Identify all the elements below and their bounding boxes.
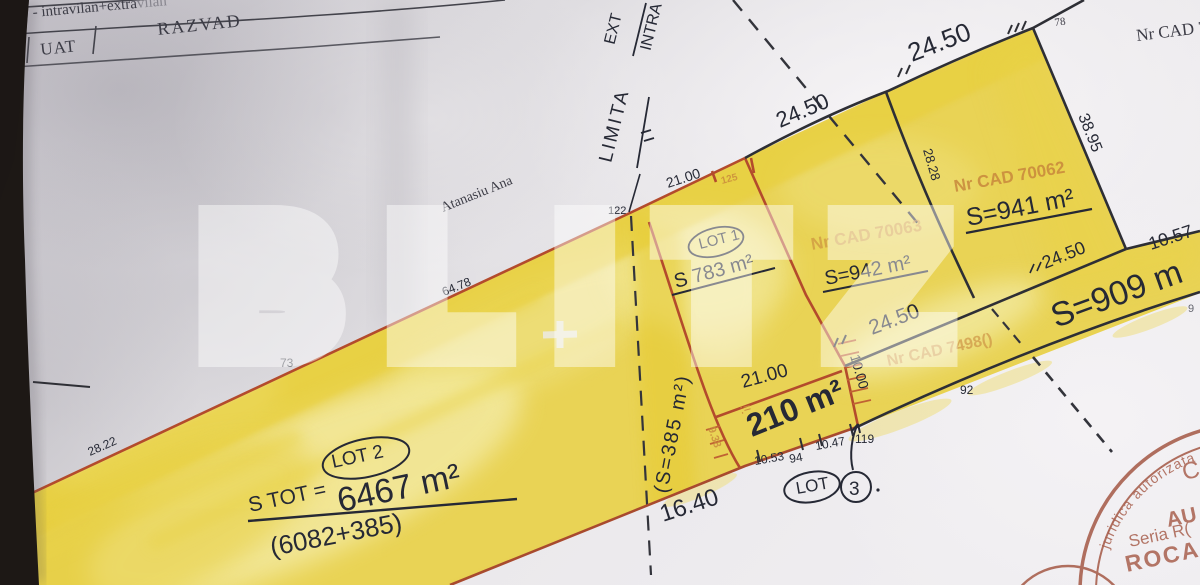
svg-text:78: 78 <box>1054 15 1067 28</box>
svg-text:UAT: UAT <box>39 36 77 59</box>
svg-text:94: 94 <box>788 450 804 466</box>
svg-text:BLITZ: BLITZ <box>203 183 1000 390</box>
svg-text:9: 9 <box>1188 303 1194 315</box>
svg-text:3: 3 <box>849 479 860 500</box>
svg-text:119: 119 <box>855 432 874 446</box>
